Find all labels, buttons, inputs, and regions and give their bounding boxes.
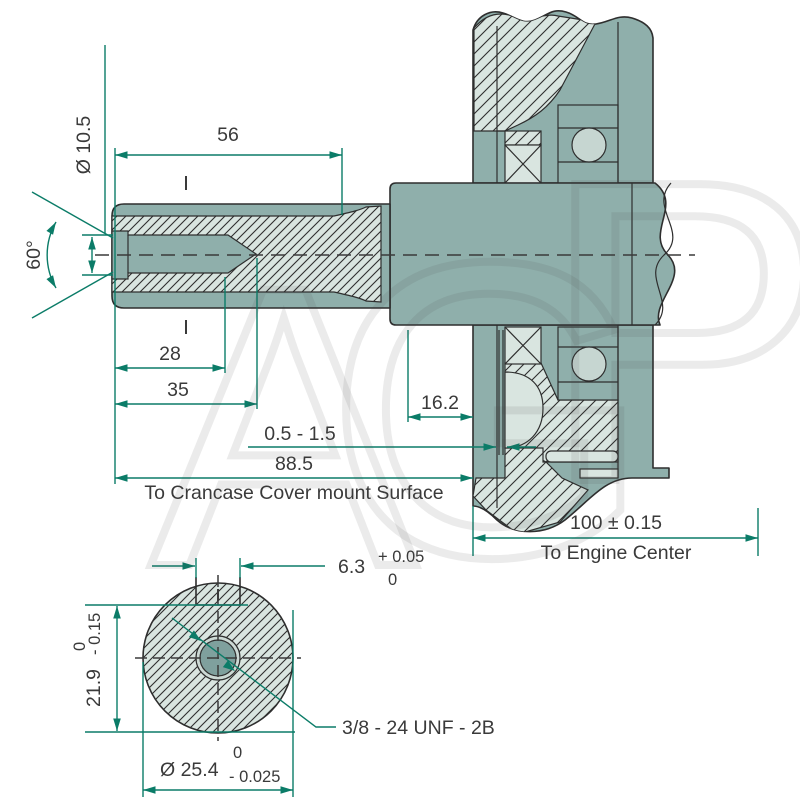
- dia-10-5-label: Ø 10.5: [73, 116, 95, 175]
- watermark-letter-p: P: [540, 92, 800, 572]
- drawing-page: 56 Ø 10.5 60° 28 35 16.2: [0, 0, 800, 800]
- technical-drawing: 56 Ø 10.5 60° 28 35 16.2: [0, 0, 800, 800]
- seal-retainer-hatch: [505, 131, 541, 145]
- angle-60-label: 60°: [23, 240, 45, 270]
- shaft-dia-label: Ø 25.4: [160, 759, 219, 781]
- key-height-tol-upper-label: 0: [71, 642, 89, 651]
- dim-56-label: 56: [217, 124, 239, 146]
- shaft-dia-tol-upper-label: 0: [233, 744, 242, 762]
- thread-label: 3/8 - 24 UNF - 2B: [342, 717, 495, 739]
- shaft-dia-tol-lower-label: - 0.025: [229, 768, 280, 786]
- key-height-label: 21.9: [83, 669, 105, 707]
